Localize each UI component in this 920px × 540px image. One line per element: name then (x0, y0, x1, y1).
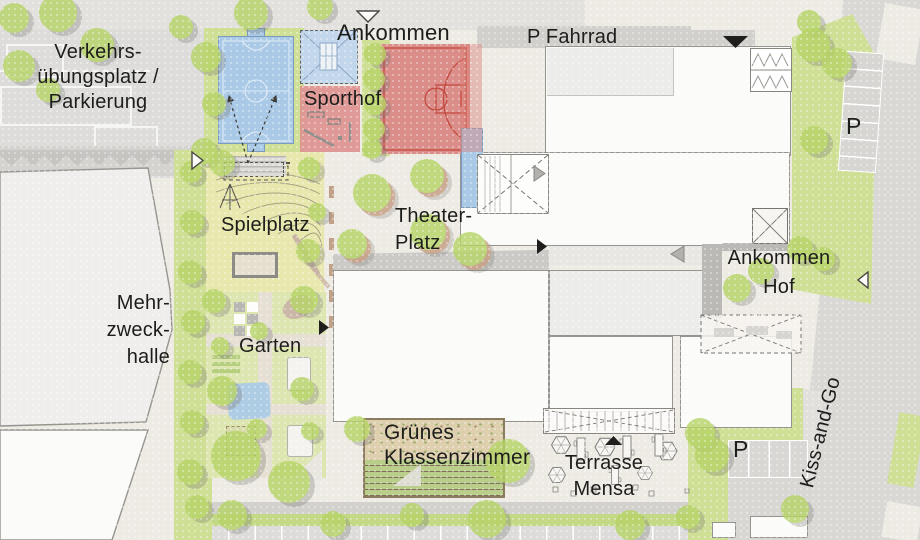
label-line: Mehr- (58, 290, 170, 317)
label-verkehrsuebungsplatz: Verkehrs- übungsplatz / Parkierung (18, 40, 178, 115)
bed-cell (247, 302, 258, 312)
label-line: Hof (724, 273, 834, 302)
school-building-center-roof (549, 270, 717, 336)
label-line: Klassenzimmer (384, 445, 530, 470)
label-line: Ankommen (724, 244, 834, 273)
label-ankommen-nord: Ankommen (337, 20, 450, 45)
garden-stripes (212, 355, 240, 375)
label-gruenes-klassenzimmer: Grünes Klassenzimmer (384, 420, 530, 470)
label-sporthof: Sporthof (304, 87, 381, 112)
label-line: Mensa (545, 476, 663, 502)
stairwell-x (477, 154, 549, 214)
parking-marking (94, 126, 158, 148)
bed-cell (234, 302, 245, 312)
tree-with-planter (410, 159, 444, 193)
climbing-structure (216, 182, 246, 212)
throw-direction-arrows (218, 88, 298, 174)
label-p-ost: P (846, 114, 862, 139)
stair-north (750, 48, 792, 92)
lounger (287, 425, 313, 457)
label-line: Platz (395, 230, 472, 257)
tree-with-planter (353, 174, 391, 212)
label-line: übungsplatz / (18, 65, 178, 90)
label-theater-platz: Theater- Platz (395, 203, 472, 257)
site-plan: Verkehrs- übungsplatz / Parkierung Ankom… (0, 0, 920, 540)
label-spielplatz: Spielplatz (221, 213, 310, 238)
mensa-building (549, 336, 673, 412)
label-terrasse-mensa: Terrasse Mensa (545, 450, 663, 502)
pond (227, 382, 271, 420)
raised-beds (234, 302, 258, 336)
sandbox (232, 252, 278, 278)
walkway-covered (549, 243, 717, 265)
label-p-sued: P (733, 437, 749, 462)
basketball-court (380, 44, 470, 154)
label-mehrzweckhalle: Mehr- zweck- halle (58, 290, 170, 371)
canopy-hof (700, 314, 802, 354)
label-line: Grünes (384, 420, 530, 445)
skylight-x (752, 208, 788, 244)
label-ankommen-hof: Ankommen Hof (724, 244, 834, 302)
court-red-overlay (460, 44, 482, 152)
small-building (712, 522, 736, 538)
bed-cell (234, 314, 245, 324)
label-p-fahrrad: P Fahrrad (527, 25, 617, 50)
label-garten: Garten (239, 334, 301, 359)
hof-wall-west (702, 244, 722, 318)
roof-inset (547, 48, 674, 96)
small-building (750, 516, 808, 538)
lounger (287, 357, 311, 391)
label-line: Verkehrs- (18, 40, 178, 65)
planting-square-dashed (226, 426, 256, 456)
bed-cell (247, 314, 258, 324)
verge-far-south (881, 501, 920, 540)
label-line: Theater- (395, 203, 472, 230)
bike-parking-strip (691, 30, 755, 46)
label-line: Terrasse (545, 450, 663, 476)
label-line: zweck- (58, 317, 170, 344)
label-line: Parkierung (18, 90, 178, 115)
basketball-markings (380, 44, 470, 154)
label-line: halle (58, 344, 170, 371)
school-building-center (333, 270, 549, 422)
